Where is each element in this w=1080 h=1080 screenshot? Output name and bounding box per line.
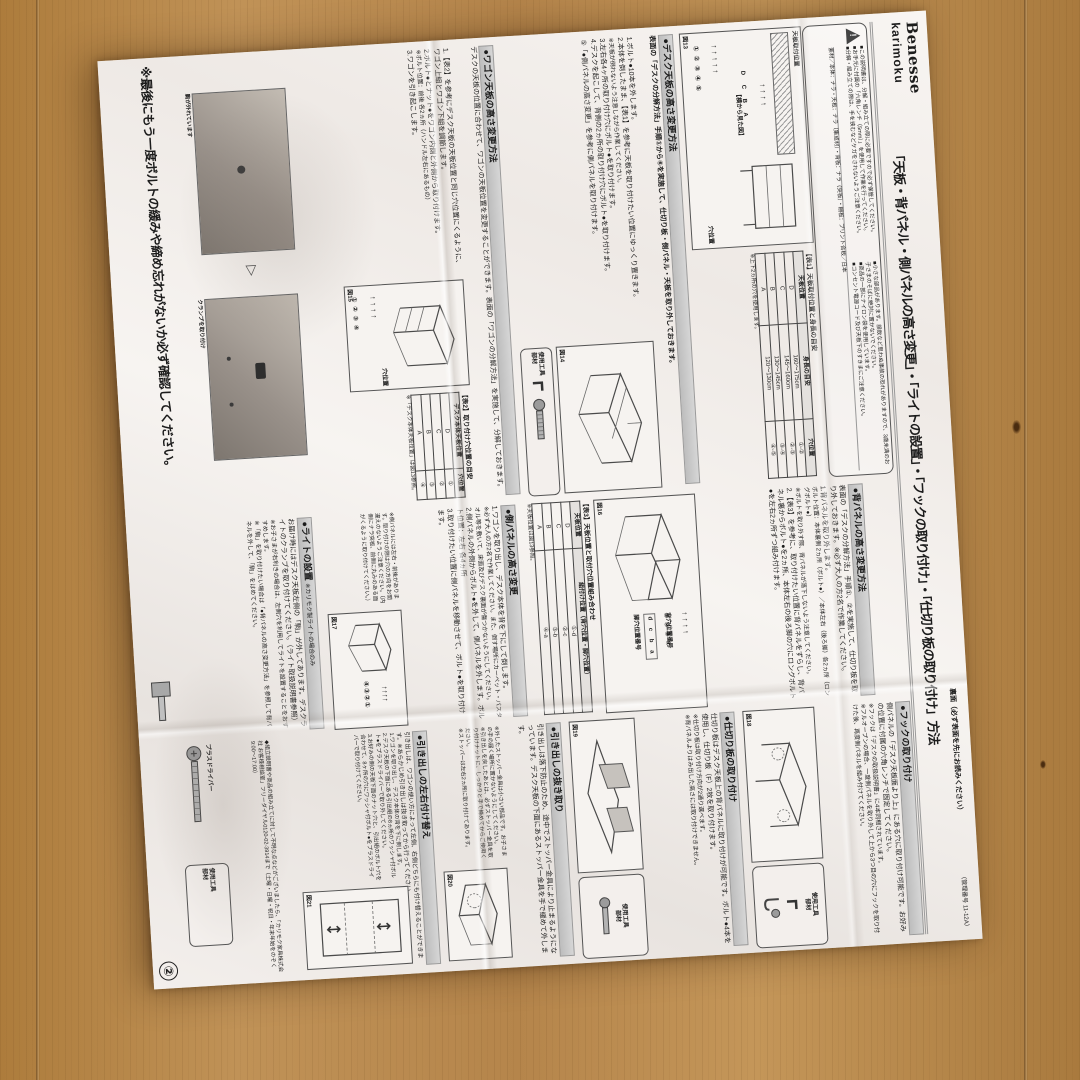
instruction-sheet-paper: Benesse karimoku 「天板・背パネル・側パネルの高さ変更」・「ライ… xyxy=(97,11,982,990)
desk-top-steps: 1.ボルト●10本を外します。 2.本体を倒したまま、【表1】を参考に天板を取り… xyxy=(578,36,651,337)
figure-caption: 図16 xyxy=(595,502,605,515)
tool-chip-label: 使用工具 部材 xyxy=(200,868,215,893)
desk-isometric-drawing xyxy=(572,356,655,476)
tool-parts-chip: 使用工具 部材 xyxy=(520,347,561,497)
brand-benesse: Benesse xyxy=(902,21,924,95)
photo-koma-removed xyxy=(192,88,296,255)
section-drawer-swap: ●引き出しの左右付け替え 引き出しは、ワゴンの使い方によって左側、右側どちらにも… xyxy=(275,730,441,973)
section-light-install: ●ライトの設置 ※カリモク製ライトの場合のみ お届け時にはデスク天板左側の「駒」… xyxy=(132,517,325,740)
cell: ② xyxy=(435,469,446,499)
desk-side-view-drawing xyxy=(738,158,801,241)
page-number: ② xyxy=(159,961,179,981)
drawer-stopper-drawing xyxy=(453,875,508,954)
section-hook-attach: ●フックの取り付け 側パネルの「デスク天板面より上」にある穴に取り付け可能です。… xyxy=(740,701,924,945)
side-hole-positions: ↑↑↑↑ ④③②① xyxy=(359,679,397,709)
desk-isometric-drawing xyxy=(343,615,399,678)
figure-caption: 図15 xyxy=(346,289,356,302)
photo-of-instruction-sheet: { "colors": {"wood":"#b5854b","paper":"#… xyxy=(0,0,1080,1080)
hole-dot xyxy=(227,357,231,361)
hex-wrench-icon xyxy=(784,897,801,914)
tool-parts-chip: 使用工具 部材 xyxy=(752,862,829,948)
footer-contact-block: ◆組立説明書や商品の組み立てに対して不明な点などがございましたら、「カリモク家具… xyxy=(145,740,283,981)
table3-block: 【表3】天板位置と取付穴位置組み合わせ 天板位置 組付け位置（背穴位置・脚穴位置… xyxy=(524,500,604,716)
figure13-label: 天板取付位置 xyxy=(790,30,800,66)
hole-positions: ↑ ↑ ↑ ↑ ↑ ① ② ③ ④ ⑤ xyxy=(689,44,728,93)
cell: ③ xyxy=(425,469,436,499)
koma-photo-block: 駒が外れています ▷ クランプを取り付け xyxy=(162,58,315,515)
figure-21: 図21 xyxy=(303,886,414,970)
divider-boards-drawing xyxy=(574,729,638,862)
table2-header: 穴位置 xyxy=(454,468,465,498)
up-arrows-icon: ↑↑↑↑ xyxy=(380,685,390,702)
hex-wrench-icon xyxy=(530,378,547,395)
wagon-top-steps: 1.【表2】を参考にデスク天板の天板位置と同じ穴位置にくるように、ワゴン上組とワ… xyxy=(403,48,463,276)
figure-caption: 図20 xyxy=(446,874,456,887)
figure-20: 図20 xyxy=(444,868,513,962)
desk-back-drawing xyxy=(606,499,692,612)
document-number: （管理番号 11-12A） xyxy=(958,873,970,930)
figure-16: ↑ ↑ ↑ ↑ ① ② ③ ④ 背穴位置番号 d c b a 脚穴位置番号 図1… xyxy=(593,494,708,714)
hole-numbers: ① ② ③ ④ ⑤ xyxy=(692,45,702,92)
hole-label: 穴位置 xyxy=(706,226,715,244)
arrow-right-icon: ▷ xyxy=(243,265,261,277)
figure-13: 天板取付位置 ↑ ↑ ↑ ↑ D C B A 【横から見た図】 ↑ ↑ ↑ ↑ … xyxy=(679,26,814,250)
koma-hole-dot xyxy=(237,165,245,173)
wood-plank-seam xyxy=(1024,0,1027,1080)
tool-label-line2: 部材 xyxy=(201,868,208,880)
tool-chip-label: 使用工具 部材 xyxy=(529,352,544,377)
hole-label: 穴位置 xyxy=(380,368,389,386)
figure-15: ↑ ↑ ↑ ↑ ① ② ③ ④ 穴位置 図15 xyxy=(344,279,470,392)
figure-caption: 図19 xyxy=(571,724,581,737)
tool-label-line1: 使用工具 xyxy=(208,868,215,892)
wood-knot xyxy=(1040,760,1046,769)
figure-caption: 図18 xyxy=(744,713,754,726)
section-side-panel-height: ●側パネルの高さ変更 1.ワゴンを取り出し、デスク本体を背を下にして倒します。 … xyxy=(320,505,529,729)
tool-label-line1: 使用工具 xyxy=(537,352,544,376)
back-side-note: 裏面（必ず表面を先にお読みください） xyxy=(947,688,965,814)
bolt-icon xyxy=(598,896,612,937)
hole-numbers: ④③②① xyxy=(362,681,371,709)
up-arrows-icon: ↑ ↑ ↑ ↑ xyxy=(680,611,690,634)
up-arrows-icon: ↑ ↑ ↑ ↑ xyxy=(368,296,378,319)
desk-hook-drawing xyxy=(751,728,818,841)
tool-label-line1: 使用工具 xyxy=(621,903,628,927)
leg-hole-label: 脚穴位置番号 xyxy=(631,614,641,650)
cell: ① xyxy=(444,468,455,498)
tool-label-line2: 部材 xyxy=(530,352,537,364)
wood-plank-seam xyxy=(36,0,39,1080)
page-title: 「天板・背パネル・側パネルの高さ変更」・「ライトの設置」・「フックの取り付け」・… xyxy=(889,148,944,745)
wood-knot xyxy=(1012,420,1021,434)
figure-14: 図14 xyxy=(556,341,663,494)
up-arrows-icon: ↑ ↑ ↑ ↑ ↑ xyxy=(710,44,721,73)
figure-caption: 図17 xyxy=(330,617,340,630)
drawer-removal-notes: ※外したストッパー金具は小さい部品です。お子さまの手の届く場所に置かないようにし… xyxy=(456,726,507,864)
side-panel-note: ※側パネルには左右・前後があります。取り付けの際は穴の方向をお間違えのないようご… xyxy=(358,512,399,606)
drawer-swap-steps: 1.ワゴンを取り出し、デスク本体の背を下に倒します。 2.デスク天板の下面にある… xyxy=(351,732,403,882)
tool-parts-chip: 使用工具 部材 xyxy=(578,873,649,959)
hook-icon xyxy=(763,893,783,920)
tool-label-line2: 部材 xyxy=(804,898,811,910)
tool-chip-label: 使用工具 部材 xyxy=(803,892,818,917)
figure-caption: 図21 xyxy=(305,895,315,908)
screwdriver-label: プラスドライバー xyxy=(203,744,214,792)
table1-block: 【表1】天板取付位置と身長の目安 天板位置 身長の目安 穴位置 D 160～17… xyxy=(747,250,828,480)
tool-parts-chip: 使用工具 部材 xyxy=(185,863,234,948)
figure-17: ↑↑↑↑ ④③②① 図17 xyxy=(328,610,409,730)
hole-dot xyxy=(229,403,233,407)
tool-label-line2: 部材 xyxy=(615,910,622,922)
tool-chip-label: 使用工具 部材 xyxy=(613,903,628,928)
tool-label-line1: 使用工具 xyxy=(810,892,817,916)
figure-caption: 図14 xyxy=(558,349,568,362)
cell: ④ xyxy=(416,470,427,500)
figure-caption: 図13 xyxy=(681,36,691,49)
section-drawer-removal: ●引き出しの抜き取り 引き出しは落下防止のため、途中でストッパー金具により止まる… xyxy=(433,722,575,963)
light-subnote: ※カリモク製ライトの場合のみ xyxy=(304,583,315,666)
leg-hole-letters: d c b a xyxy=(643,613,658,660)
table2-block: 【表2】取り付け穴位置の目安 デスク本体天板位置 穴位置 D ① C ② B ③ xyxy=(403,391,476,501)
section-divider-attach: ●仕切り板の取り付け 仕切り板はデスク天板上の背パネルに取り付けが可能です。ボル… xyxy=(567,712,749,956)
up-arrows-icon: ↑ ↑ ↑ ↑ xyxy=(758,83,768,106)
desk-underside-drawing xyxy=(314,893,406,962)
clamp-bolt-icon xyxy=(147,676,176,727)
section-desk-top-height: 天板取付位置 ↑ ↑ ↑ ↑ D C B A 【横から見た図】 ↑ ↑ ↑ ↑ … xyxy=(499,26,828,494)
table2: デスク本体天板位置 穴位置 D ① C ② B ③ A ④ xyxy=(410,392,465,501)
bolt-icon xyxy=(532,397,549,444)
figure-18: 図18 xyxy=(742,707,823,863)
section-back-panel-height: ●背パネルの高さ変更方法 表面の「デスクの分解方法」手順①、②を実施して、仕切り… xyxy=(523,483,875,715)
section-wagon-top-height: ●ワゴン天板の高さ変更方法 デスクの天板の位置に合わせて、ワゴンの天板位置を変更… xyxy=(298,45,521,506)
figure-19: 図19 xyxy=(569,718,644,874)
warning-triangle-icon xyxy=(846,28,861,45)
wagon-drawing xyxy=(385,293,464,377)
light-heading-text: ●ライトの設置 xyxy=(300,521,314,581)
photo-clamp-attached xyxy=(204,293,308,460)
clamp-graphic xyxy=(255,363,266,380)
